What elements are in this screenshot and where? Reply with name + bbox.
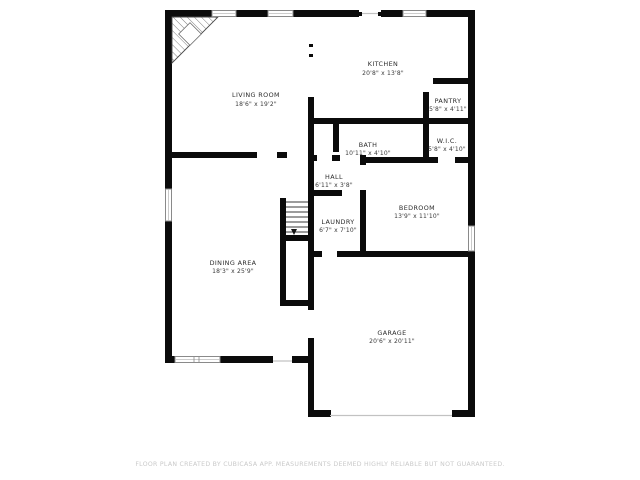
room-label-wic: W.I.C. 5'8" x 4'10": [428, 137, 466, 153]
room-label-living: LIVING ROOM 18'6" x 19'2": [232, 91, 280, 108]
room-dims: 13'9" x 11'10": [394, 213, 440, 220]
room-name: GARAGE: [377, 329, 406, 337]
room-name: HALL: [325, 173, 343, 181]
floor-plan-page: LIVING ROOM 18'6" x 19'2" KITCHEN 20'8" …: [0, 0, 640, 480]
room-dims: 20'6" x 20'11": [369, 338, 415, 345]
room-label-bath: BATH 10'11" x 4'10": [345, 141, 391, 157]
room-label-garage: GARAGE 20'6" x 20'11": [369, 329, 415, 345]
room-name: KITCHEN: [368, 60, 399, 68]
room-name: W.I.C.: [437, 137, 457, 145]
staircase-icon: [280, 198, 308, 241]
room-name: DINING AREA: [210, 259, 257, 267]
room-dims: 6'11" x 3'8": [315, 182, 353, 189]
room-label-kitchen: KITCHEN 20'8" x 13'8": [362, 60, 404, 77]
room-label-laundry: LAUNDRY 6'7" x 7'10": [319, 218, 357, 234]
room-dims: 5'8" x 4'11": [429, 106, 467, 113]
room-dims: 20'8" x 13'8": [362, 70, 404, 77]
room-label-bedroom: BEDROOM 13'9" x 11'10": [394, 204, 440, 220]
room-label-dining: DINING AREA 18'3" x 25'9": [210, 259, 257, 275]
window-marker: [403, 11, 426, 17]
room-name: LIVING ROOM: [232, 91, 280, 99]
room-name: LAUNDRY: [321, 218, 354, 226]
room-dims: 18'3" x 25'9": [212, 268, 254, 275]
window-marker: [212, 11, 236, 17]
room-dims: 5'8" x 4'10": [428, 146, 466, 153]
room-label-pantry: PANTRY 5'8" x 4'11": [429, 97, 467, 113]
room-name: BATH: [359, 141, 378, 149]
room-label-hall: HALL 6'11" x 3'8": [315, 173, 353, 189]
window-marker: [175, 357, 220, 363]
room-name: PANTRY: [435, 97, 462, 105]
room-dims: 6'7" x 7'10": [319, 227, 357, 234]
window-marker: [268, 11, 293, 17]
corner-fireplace-icon: [172, 17, 218, 63]
floor-plan-canvas: LIVING ROOM 18'6" x 19'2" KITCHEN 20'8" …: [0, 0, 640, 480]
disclaimer-text: FLOOR PLAN CREATED BY CUBICASA APP. MEAS…: [135, 461, 504, 468]
room-dims: 10'11" x 4'10": [345, 150, 391, 157]
window-marker: [469, 226, 475, 251]
window-marker: [166, 189, 172, 221]
room-name: BEDROOM: [399, 204, 435, 212]
room-dims: 18'6" x 19'2": [235, 101, 277, 108]
